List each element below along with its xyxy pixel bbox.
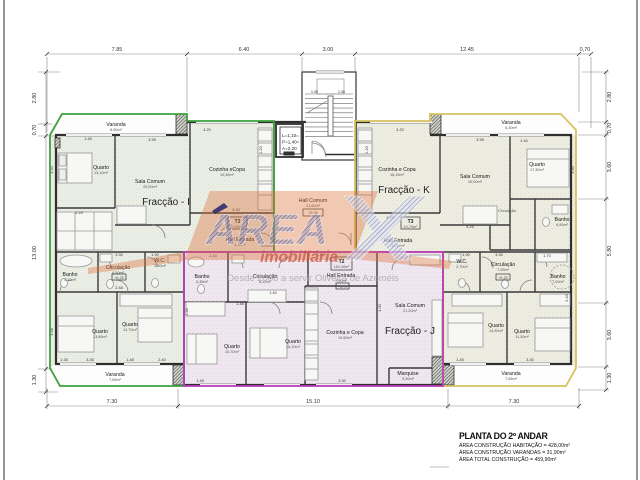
svg-text:0,70: 0,70	[580, 47, 591, 53]
svg-text:14,30m²: 14,30m²	[489, 329, 504, 333]
svg-text:0,70: 0,70	[607, 123, 613, 134]
svg-text:1.30: 1.30	[185, 308, 189, 315]
svg-text:3.95: 3.95	[148, 138, 155, 142]
svg-text:21,20m²: 21,20m²	[403, 309, 418, 313]
svg-text:3.35: 3.35	[86, 358, 93, 362]
svg-text:AREA: AREA	[205, 206, 328, 254]
svg-text:7,65m²: 7,65m²	[505, 377, 518, 381]
svg-text:4.25: 4.25	[466, 225, 473, 229]
svg-text:2.48: 2.48	[115, 286, 122, 290]
svg-text:1.45: 1.45	[456, 358, 463, 362]
svg-text:1.40: 1.40	[269, 291, 276, 295]
svg-text:7,65m²: 7,65m²	[109, 378, 122, 382]
svg-text:3.60: 3.60	[607, 162, 613, 173]
svg-text:4.20: 4.20	[203, 128, 210, 132]
svg-text:13.00: 13.00	[32, 246, 38, 260]
svg-text:3.95: 3.95	[476, 138, 483, 142]
svg-text:Fracção - J: Fracção - J	[385, 326, 435, 337]
svg-text:2.80: 2.80	[32, 93, 38, 104]
svg-text:3.30: 3.30	[495, 253, 502, 257]
svg-text:7.30: 7.30	[509, 399, 520, 405]
svg-text:10,70m²: 10,70m²	[404, 225, 419, 229]
svg-text:15.10: 15.10	[306, 399, 320, 405]
svg-text:PLANTA DO 2º ANDAR: PLANTA DO 2º ANDAR	[459, 431, 548, 441]
svg-text:4,50m²: 4,50m²	[112, 271, 125, 275]
svg-text:imobiliária: imobiliária	[260, 249, 338, 266]
svg-text:2.40: 2.40	[158, 358, 165, 362]
svg-text:3.30: 3.30	[526, 358, 533, 362]
svg-text:1.40: 1.40	[520, 139, 527, 143]
svg-text:16,15m²: 16,15m²	[390, 173, 405, 177]
svg-text:2.80: 2.80	[607, 92, 613, 103]
svg-text:19,50m²: 19,50m²	[338, 336, 353, 340]
svg-text:ÁREA TOTAL CONSTRUÇÃO = 459,90: ÁREA TOTAL CONSTRUÇÃO = 459,90m²	[459, 456, 557, 463]
svg-text:1.30: 1.30	[311, 90, 318, 94]
svg-text:3.30: 3.30	[115, 253, 122, 257]
svg-text:1.20: 1.20	[365, 146, 369, 153]
svg-text:16,10m²: 16,10m²	[286, 345, 301, 349]
svg-text:7,00m²: 7,00m²	[552, 280, 565, 284]
svg-text:+6,25: +6,25	[498, 276, 508, 280]
svg-text:1.48: 1.48	[236, 302, 243, 306]
svg-text:4,10m²: 4,10m²	[64, 278, 77, 282]
svg-text:3.30: 3.30	[338, 379, 345, 383]
svg-text:ÁREA CONSTRUÇÃO VARANDAS = 31,: ÁREA CONSTRUÇÃO VARANDAS = 31,90m²	[459, 449, 566, 456]
svg-text:10,45m²: 10,45m²	[220, 173, 235, 177]
svg-text:3.60: 3.60	[607, 330, 613, 341]
svg-text:1.20: 1.20	[259, 146, 263, 153]
svg-text:7,05m²: 7,05m²	[497, 268, 510, 272]
svg-text:L=1,10=: L=1,10=	[282, 133, 299, 138]
svg-text:5,30m²: 5,30m²	[402, 377, 415, 381]
svg-text:1.45: 1.45	[196, 379, 203, 383]
svg-text:6,30m²: 6,30m²	[505, 126, 518, 130]
svg-text:8,90m²: 8,90m²	[110, 128, 123, 132]
svg-text:A=2,20: A=2,20	[282, 146, 297, 151]
svg-text:1.48: 1.48	[126, 358, 133, 362]
svg-text:13,10m²: 13,10m²	[94, 171, 109, 175]
svg-text:1.30: 1.30	[607, 373, 613, 384]
svg-text:11,30m²: 11,30m²	[515, 335, 529, 339]
svg-text:5.80: 5.80	[607, 246, 613, 257]
svg-text:4.20: 4.20	[396, 128, 403, 132]
svg-text:1.70: 1.70	[543, 254, 550, 258]
svg-text:14,70m²: 14,70m²	[123, 328, 138, 332]
svg-text:12.45: 12.45	[460, 47, 474, 53]
svg-text:1.45: 1.45	[84, 137, 91, 141]
svg-text:+5,70: +5,70	[338, 285, 348, 289]
svg-text:1.90: 1.90	[151, 253, 158, 257]
svg-text:ÁREA CONSTRUÇÃO HABITAÇÃO = 42: ÁREA CONSTRUÇÃO HABITAÇÃO = 428,00m²	[459, 442, 570, 449]
svg-text:7.30: 7.30	[107, 399, 118, 405]
svg-text:1.30: 1.30	[338, 90, 345, 94]
svg-text:6.40: 6.40	[239, 47, 250, 53]
svg-text:20,00m²: 20,00m²	[143, 185, 158, 189]
svg-text:Fracção - K: Fracção - K	[378, 185, 430, 196]
svg-text:10,70m²: 10,70m²	[225, 350, 240, 354]
svg-text:4.00: 4.00	[378, 304, 382, 311]
svg-text:7.85: 7.85	[112, 47, 123, 53]
svg-text:+6,25: +6,25	[114, 276, 124, 280]
svg-text:2.40: 2.40	[565, 294, 569, 301]
svg-text:3.00: 3.00	[323, 47, 334, 53]
svg-text:6,90m²: 6,90m²	[556, 223, 569, 227]
svg-text:Circulação: Circulação	[498, 209, 516, 213]
svg-text:2,70m²: 2,70m²	[456, 265, 469, 269]
svg-text:3.40: 3.40	[571, 166, 575, 173]
svg-text:20,00m²: 20,00m²	[468, 180, 483, 184]
svg-text:17,30m²: 17,30m²	[530, 168, 545, 172]
svg-text:0,70: 0,70	[32, 125, 38, 136]
svg-text:1.90: 1.90	[462, 253, 469, 257]
svg-text:P=1,40=: P=1,40=	[282, 140, 300, 145]
svg-text:Desde 2008 a servir Oliveira d: Desde 2008 a servir Oliveira de Azeméis	[227, 273, 399, 284]
svg-text:Fracção - I: Fracção - I	[142, 197, 190, 208]
svg-text:1.30: 1.30	[32, 375, 38, 386]
svg-text:13,85m²: 13,85m²	[93, 335, 108, 339]
svg-text:1.35: 1.35	[60, 358, 67, 362]
svg-text:6,35m²: 6,35m²	[196, 280, 209, 284]
svg-text:2.25: 2.25	[75, 211, 82, 215]
